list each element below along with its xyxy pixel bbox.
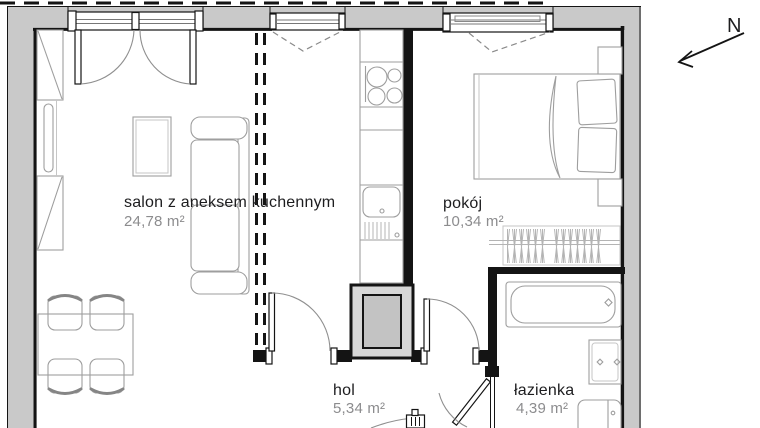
dining-table [38, 296, 133, 394]
north-label: N [727, 15, 741, 38]
room-area-pokoj: 10,34 m² [443, 214, 504, 231]
washbasin [589, 340, 621, 384]
room-label-hol: hol [333, 382, 355, 400]
room-area-salon: 24,78 m² [124, 214, 185, 231]
bedroom-window [443, 13, 553, 52]
room-label-lazienka: łazienka [514, 382, 574, 400]
kitchen-window [270, 13, 345, 51]
salon-hol-door [266, 293, 337, 364]
hol-bedroom-door [421, 299, 479, 364]
bed [474, 74, 620, 179]
balcony-door [68, 11, 203, 84]
north-arrow-icon [679, 33, 744, 67]
floor-plan-drawing [0, 0, 760, 428]
wardrobe-bedroom [489, 226, 620, 265]
kitchen-annex-dashed-partition [257, 33, 265, 352]
installation-shaft [351, 285, 413, 358]
room-label-pokoj: pokój [443, 195, 482, 213]
room-area-hol: 5,34 m² [333, 401, 385, 418]
tv-unit [44, 104, 53, 172]
bathtub [506, 282, 621, 327]
room-label-salon: salon z aneksem kuchennym [124, 194, 335, 212]
room-area-lazienka: 4,39 m² [516, 401, 568, 418]
bathroom-door [439, 379, 490, 427]
washing-machine [578, 400, 621, 428]
coffee-table [133, 117, 171, 176]
floor-plan: salon z aneksem kuchennym 24,78 m² pokój… [0, 0, 760, 428]
